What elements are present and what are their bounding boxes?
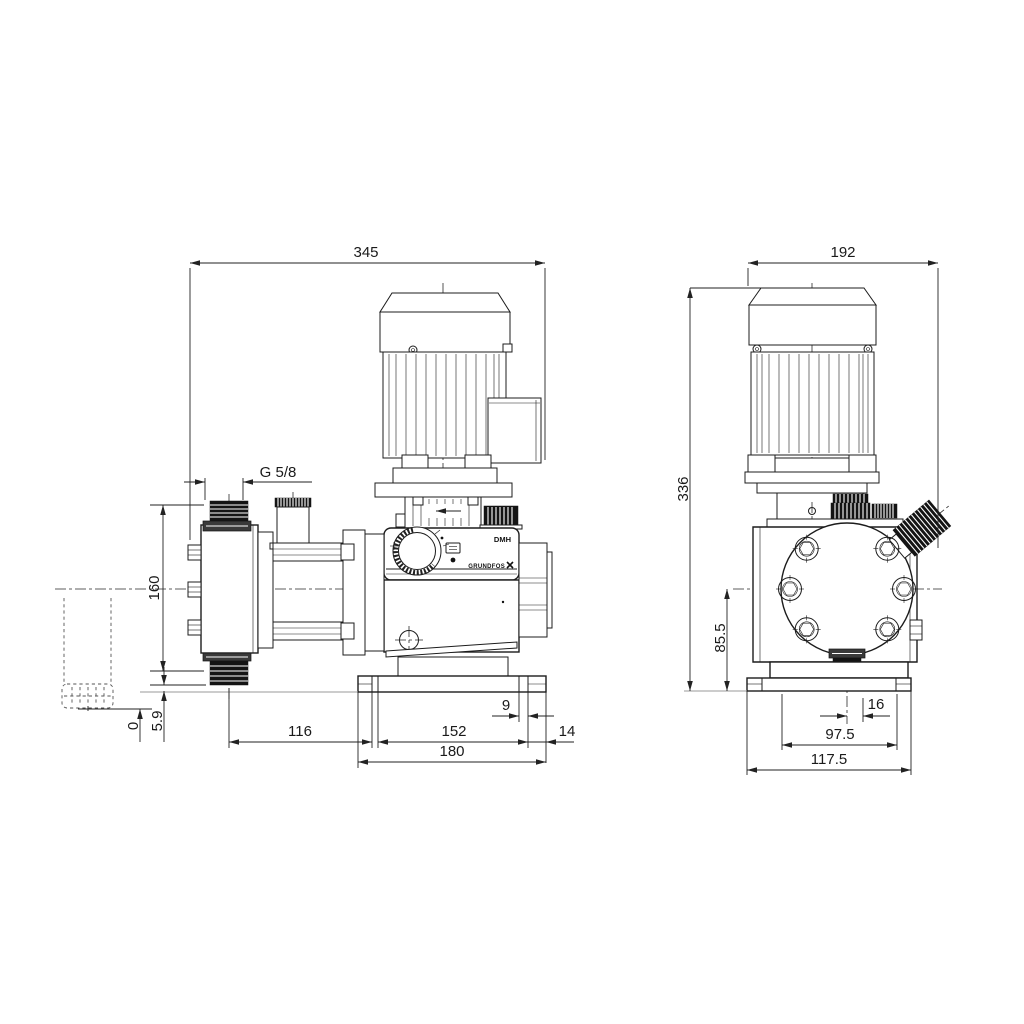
dim-edge-offset: 14	[559, 723, 576, 740]
suction-valve-thread	[203, 653, 251, 685]
gearbox-side: DMH GRUNDFOS	[384, 527, 552, 678]
front-view: 192 336 85.5 16 97.5 117.5	[675, 244, 951, 775]
motor-flange	[375, 483, 512, 497]
dim-valve-offset: 16	[868, 696, 885, 713]
base-side	[140, 676, 546, 692]
dim-overall-height: 336	[675, 476, 692, 501]
dim-clearance: 5.9	[149, 711, 166, 732]
discharge-valve-thread	[203, 501, 251, 531]
pump-dimensional-drawing: DMH GRUNDFOS	[0, 0, 1024, 1024]
dim-ground-ref: 0	[125, 722, 142, 730]
dim-slot-span-front: 97.5	[825, 726, 854, 743]
motor-fins-front	[751, 352, 874, 455]
dim-slot-span: 152	[441, 723, 466, 740]
lantern-rails	[273, 543, 343, 640]
adapter-front	[767, 493, 903, 527]
dim-thread: G 5/8	[260, 464, 297, 481]
model-badge: DMH	[494, 535, 511, 544]
svg-text:GRUNDFOS: GRUNDFOS	[468, 564, 505, 570]
side-valve-cylinder	[519, 543, 552, 637]
dim-axis-height: 85.5	[712, 623, 729, 652]
dim-center-to-slot: 116	[288, 723, 312, 740]
dim-slot-width: 9	[502, 697, 510, 714]
pump-housing-front	[753, 500, 951, 679]
dim-valve-span: 160	[146, 575, 163, 600]
dim-overall-depth: 192	[830, 244, 855, 261]
dim-base-length: 180	[439, 743, 464, 760]
drawing-sheet: DMH GRUNDFOS	[0, 0, 1024, 1024]
head-bolts	[188, 545, 201, 635]
dosing-head-side	[188, 498, 384, 685]
coupling-side	[396, 497, 522, 529]
motor-front	[745, 288, 879, 493]
gearbox-body	[384, 580, 519, 652]
relief-valve-cylinder	[270, 498, 316, 549]
dim-overall-length: 345	[353, 244, 378, 261]
terminal-box	[488, 398, 541, 463]
base-front	[684, 662, 911, 691]
side-port	[910, 620, 922, 640]
secondary-knurl	[872, 504, 897, 518]
oil-filler-knob	[480, 506, 522, 529]
phantom-foot-valve	[62, 598, 152, 711]
motor-side	[375, 293, 541, 497]
indicator-dot	[451, 558, 456, 563]
dim-base-width: 117.5	[811, 751, 847, 768]
side-view: DMH GRUNDFOS	[55, 244, 575, 768]
